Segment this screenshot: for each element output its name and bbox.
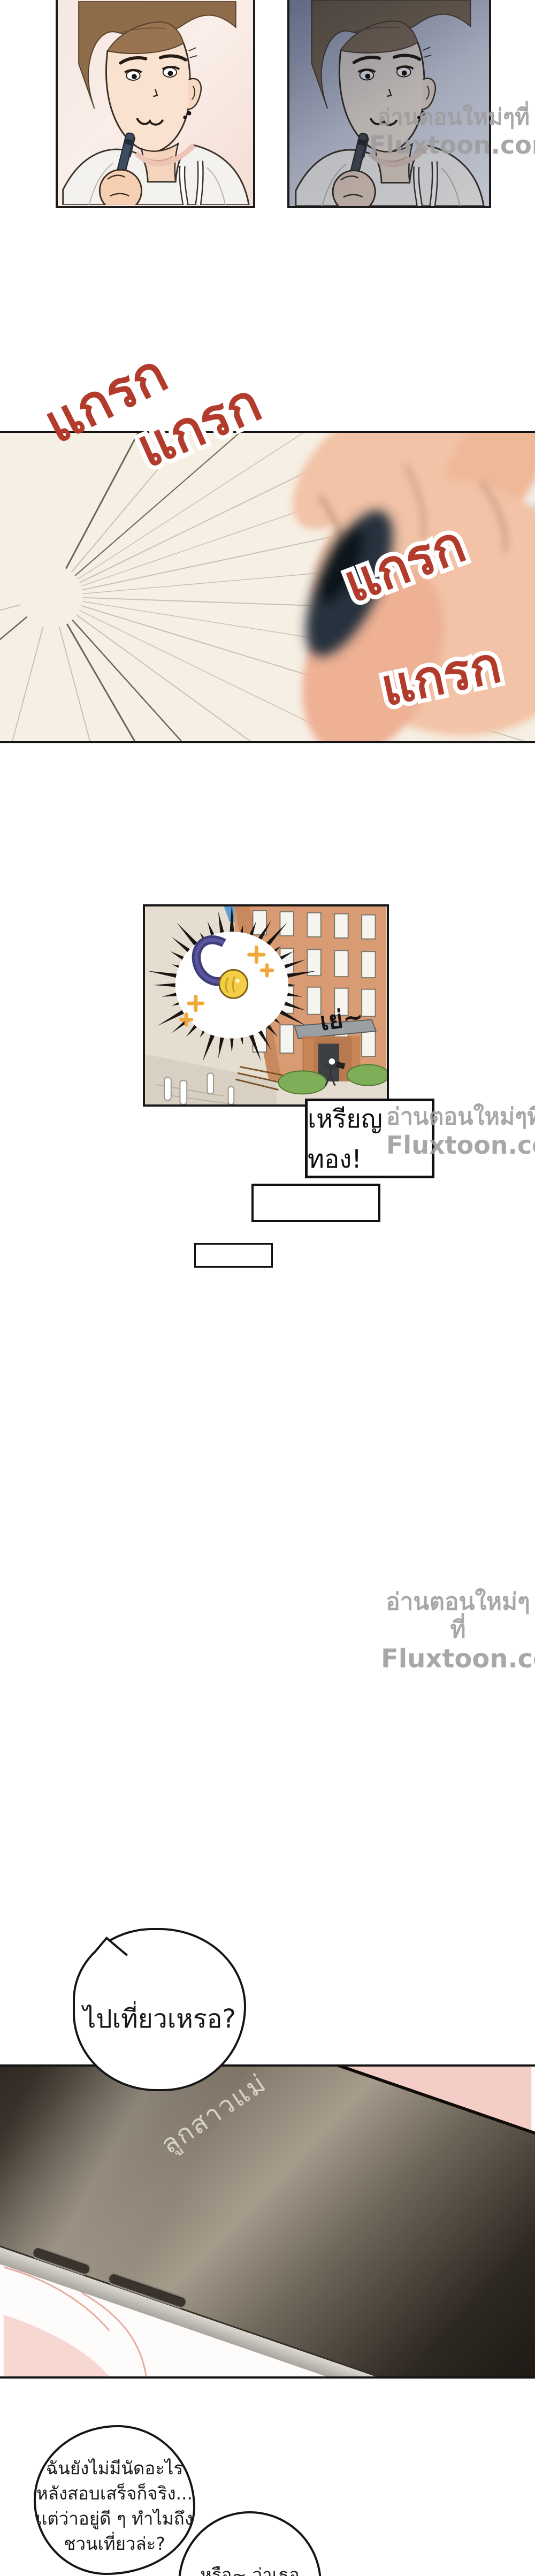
reply-line-4: ชวนเที่ยวล่ะ? bbox=[36, 2532, 193, 2557]
site-watermark: อ่านตอนใหม่ๆที่ Fluxtoon.com bbox=[381, 1588, 535, 1674]
reply-line-2: หลังสอบเสร็จก็จริง... bbox=[36, 2481, 193, 2506]
watermark-site-name: Fluxtoon.com bbox=[381, 1644, 535, 1674]
cheer-text: เย่~ bbox=[317, 997, 366, 1042]
speech-bubble-or: หรือ~ ว่าเธอ bbox=[178, 2511, 322, 2576]
bubble-text: หรือ~ ว่าเธอ bbox=[180, 2560, 319, 2576]
speech-bubble-reply: ฉันยังไม่มีนัดอะไร หลังสอบเสร็จก็จริง...… bbox=[34, 2425, 195, 2575]
bubble-text: ฉันยังไม่มีนัดอะไร หลังสอบเสร็จก็จริง...… bbox=[36, 2427, 193, 2556]
webtoon-page: อ่านตอนใหม่ๆที่ Fluxtoon.com bbox=[0, 0, 535, 2576]
watermark-site-name: Fluxtoon.com bbox=[386, 1131, 535, 1160]
empty-caption-box-small bbox=[194, 1243, 273, 1268]
reply-line-1: ฉันยังไม่มีนัดอะไร bbox=[36, 2456, 193, 2481]
bubble-tail-notch bbox=[93, 1937, 128, 1971]
site-watermark: อ่านตอนใหม่ๆที่ Fluxtoon.com bbox=[369, 104, 530, 159]
watermark-thai-line: อ่านตอนใหม่ๆที่ bbox=[369, 104, 530, 131]
speech-bubble-travel-question: ไปเที่ยวเหรอ? bbox=[73, 1928, 246, 2091]
character-holding-pen-illustration bbox=[58, 0, 253, 206]
watermark-thai-line: อ่านตอนใหม่ๆที่ bbox=[386, 1103, 535, 1131]
empty-caption-box bbox=[251, 1184, 380, 1222]
bubble-text: ไปเที่ยวเหรอ? bbox=[75, 1999, 244, 2039]
dark-mood-overlay bbox=[289, 0, 489, 206]
watermark-site-name: Fluxtoon.com bbox=[369, 131, 530, 159]
site-watermark: อ่านตอนใหม่ๆที่ Fluxtoon.com bbox=[386, 1103, 535, 1160]
panel-phone-on-bed: ลูกสาวแม่ bbox=[0, 2064, 535, 2379]
reply-line-3: แต่ว่าอยู่ดี ๆ ทำไมถึง bbox=[36, 2506, 193, 2532]
watermark-thai-line: อ่านตอนใหม่ๆที่ bbox=[381, 1588, 535, 1644]
panel-portrait-day bbox=[56, 0, 255, 208]
